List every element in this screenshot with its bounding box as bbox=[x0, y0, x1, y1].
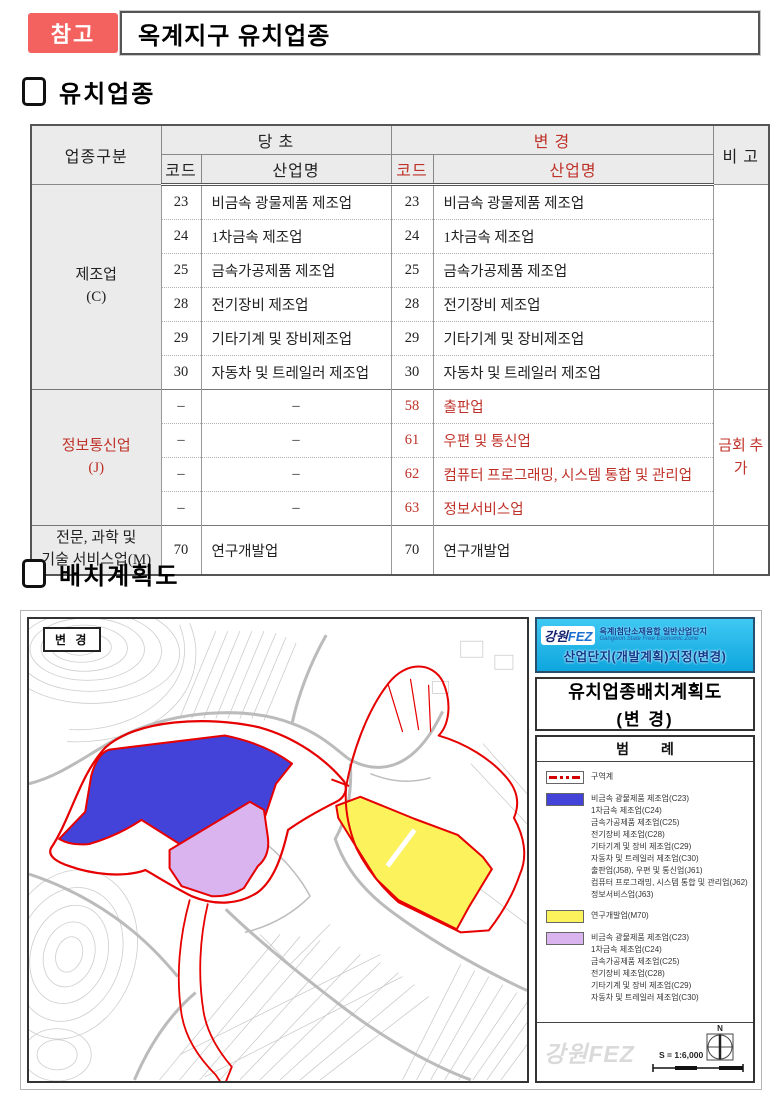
legend-line: 1차금속 제조업(C24) bbox=[591, 805, 748, 817]
logo-fez: FEZ bbox=[568, 629, 593, 644]
legend-line: 컴퓨터 프로그래밍, 시스템 통합 및 관리업(J62) bbox=[591, 877, 748, 889]
legend-line: 자동차 및 트레일러 제조업(C30) bbox=[591, 853, 748, 865]
map-change-label: 변 경 bbox=[43, 627, 101, 652]
panel-footer: 강원FEZ N S = 1:6,000 bbox=[537, 1022, 753, 1081]
map-canvas: 변 경 bbox=[27, 617, 529, 1083]
orig-code: 23 bbox=[161, 185, 201, 220]
legend-item-boundary: 구역계 bbox=[546, 771, 746, 784]
scale-bar-icon bbox=[651, 1064, 747, 1073]
orig-name: 연구개발업 bbox=[201, 526, 391, 576]
checkbox-square-icon bbox=[22, 77, 46, 106]
orig-code: – bbox=[161, 390, 201, 424]
col-header-changed: 변 경 bbox=[391, 125, 713, 155]
orig-name: – bbox=[201, 390, 391, 424]
yellow-zone-swatch-icon bbox=[546, 910, 584, 923]
panel-doc-title-box: 유치업종배치계획도 (변 경) bbox=[535, 677, 755, 731]
orig-name: – bbox=[201, 424, 391, 458]
map-svg bbox=[29, 619, 527, 1081]
orig-code: 25 bbox=[161, 254, 201, 288]
new-name: 정보서비스업 bbox=[433, 492, 713, 526]
new-name: 전기장비 제조업 bbox=[433, 288, 713, 322]
new-code: 28 bbox=[391, 288, 433, 322]
legend-line: 연구개발업(M70) bbox=[591, 910, 649, 922]
remark-cell bbox=[713, 526, 769, 576]
orig-code: 24 bbox=[161, 220, 201, 254]
category-ict: 정보통신업 (J) bbox=[31, 390, 161, 526]
watermark-logo: 강원FEZ bbox=[544, 1035, 635, 1069]
legend-line: 1차금속 제조업(C24) bbox=[591, 944, 699, 956]
new-code: 24 bbox=[391, 220, 433, 254]
legend-line: 출판업(J58), 우편 및 통신업(J61) bbox=[591, 865, 748, 877]
map-side-panel: 강원FEZ 옥계|첨단소재융합 일반산업단지 Gangwon State Fre… bbox=[535, 617, 755, 1083]
new-code: 23 bbox=[391, 185, 433, 220]
section-layout-title: 배치계획도 bbox=[59, 556, 179, 591]
north-label: N bbox=[703, 1025, 737, 1033]
panel-header-subtitle: Gangwon State Free Economic Zone bbox=[599, 636, 707, 642]
col-header-code-orig: 코드 bbox=[161, 155, 201, 185]
new-name: 출판업 bbox=[433, 390, 713, 424]
new-name: 연구개발업 bbox=[433, 526, 713, 576]
doc-title-line2: (변 경) bbox=[616, 705, 673, 730]
orig-code: – bbox=[161, 492, 201, 526]
new-name: 컴퓨터 프로그래밍, 시스템 통합 및 관리업 bbox=[433, 458, 713, 492]
new-code: 62 bbox=[391, 458, 433, 492]
col-header-name-new: 산업명 bbox=[433, 155, 713, 185]
industries-table-wrap: 업종구분 당 초 변 경 비 고 코드 산업명 코드 산업명 제조업 (C) 2… bbox=[30, 124, 770, 576]
legend-line: 기타기계 및 장비 제조업(C29) bbox=[591, 841, 748, 853]
panel-header-title: 옥계|첨단소재융합 일반산업단지 bbox=[599, 628, 707, 636]
boundary-swatch-icon bbox=[546, 771, 584, 784]
col-header-name-orig: 산업명 bbox=[201, 155, 391, 185]
new-name: 금속가공제품 제조업 bbox=[433, 254, 713, 288]
orig-name: 전기장비 제조업 bbox=[201, 288, 391, 322]
new-name: 비금속 광물제품 제조업 bbox=[433, 185, 713, 220]
col-header-category: 업종구분 bbox=[31, 125, 161, 185]
section-layout-heading: 배치계획도 bbox=[22, 556, 179, 591]
new-code: 29 bbox=[391, 322, 433, 356]
category-line1: 제조업 bbox=[33, 265, 160, 287]
purple-zone-swatch-icon bbox=[546, 932, 584, 945]
blue-zone-swatch-icon bbox=[546, 793, 584, 806]
doc-title-line1: 유치업종배치계획도 bbox=[568, 678, 722, 704]
checkbox-square-icon bbox=[22, 559, 46, 588]
remark-added: 금회 추가 bbox=[713, 390, 769, 526]
orig-name: – bbox=[201, 458, 391, 492]
legend-box: 범 례 구역계 비금속 광물제품 제조업(C23) 1차금속 제조업(C24) … bbox=[535, 735, 755, 1083]
section-industries-title: 유치업종 bbox=[59, 74, 155, 109]
legend-item-purple: 비금속 광물제품 제조업(C23) 1차금속 제조업(C24) 금속가공제품 제… bbox=[546, 932, 746, 1004]
new-code: 58 bbox=[391, 390, 433, 424]
legend-line: 전기장비 제조업(C28) bbox=[591, 829, 748, 841]
table-row: 제조업 (C) 23 비금속 광물제품 제조업 23 비금속 광물제품 제조업 bbox=[31, 185, 769, 220]
orig-name: – bbox=[201, 492, 391, 526]
legend-line: 전기장비 제조업(C28) bbox=[591, 968, 699, 980]
legend-line: 비금속 광물제품 제조업(C23) bbox=[591, 793, 748, 805]
orig-name: 기타기계 및 장비제조업 bbox=[201, 322, 391, 356]
panel-header-line2: 산업단지(개발계획)지정(변경) bbox=[541, 646, 749, 665]
category-line2: (C) bbox=[33, 287, 160, 309]
col-header-remarks: 비 고 bbox=[713, 125, 769, 185]
legend-line: 금속가공제품 제조업(C25) bbox=[591, 817, 748, 829]
col-header-original: 당 초 bbox=[161, 125, 391, 155]
category-line1: 정보통신업 bbox=[33, 436, 160, 458]
category-line2: (J) bbox=[33, 458, 160, 480]
orig-code: 29 bbox=[161, 322, 201, 356]
legend-line: 기타기계 및 장비 제조업(C29) bbox=[591, 980, 699, 992]
section-industries-heading: 유치업종 bbox=[22, 74, 155, 109]
industries-table: 업종구분 당 초 변 경 비 고 코드 산업명 코드 산업명 제조업 (C) 2… bbox=[30, 124, 770, 576]
reference-badge: 참고 bbox=[28, 13, 118, 53]
new-code: 30 bbox=[391, 356, 433, 390]
scale-indicator: S = 1:6,000 bbox=[651, 1050, 747, 1078]
legend-line: 비금속 광물제품 제조업(C23) bbox=[591, 932, 699, 944]
new-name: 1차금속 제조업 bbox=[433, 220, 713, 254]
orig-name: 1차금속 제조업 bbox=[201, 220, 391, 254]
new-name: 기타기계 및 장비제조업 bbox=[433, 322, 713, 356]
category-manufacturing: 제조업 (C) bbox=[31, 185, 161, 390]
new-code: 61 bbox=[391, 424, 433, 458]
orig-code: – bbox=[161, 424, 201, 458]
new-name: 자동차 및 트레일러 제조업 bbox=[433, 356, 713, 390]
legend-item-yellow: 연구개발업(M70) bbox=[546, 910, 746, 923]
gangwon-fez-logo: 강원FEZ bbox=[541, 626, 595, 645]
page-title: 옥계지구 유치업종 bbox=[138, 16, 330, 51]
legend-boundary-label: 구역계 bbox=[591, 771, 613, 783]
scale-label: S = 1:6,000 bbox=[659, 1050, 747, 1060]
legend-item-blue: 비금속 광물제품 제조업(C23) 1차금속 제조업(C24) 금속가공제품 제… bbox=[546, 793, 746, 901]
legend-line: 정보서비스업(J63) bbox=[591, 889, 748, 901]
new-code: 63 bbox=[391, 492, 433, 526]
orig-code: 30 bbox=[161, 356, 201, 390]
page-title-box: 옥계지구 유치업종 bbox=[120, 11, 760, 55]
new-code: 70 bbox=[391, 526, 433, 576]
new-name: 우편 및 통신업 bbox=[433, 424, 713, 458]
panel-blue-header: 강원FEZ 옥계|첨단소재융합 일반산업단지 Gangwon State Fre… bbox=[535, 617, 755, 673]
orig-name: 금속가공제품 제조업 bbox=[201, 254, 391, 288]
legend-line: 금속가공제품 제조업(C25) bbox=[591, 956, 699, 968]
logo-gangwon: 강원 bbox=[544, 629, 568, 644]
col-header-code-new: 코드 bbox=[391, 155, 433, 185]
legend-title: 범 례 bbox=[537, 737, 753, 762]
orig-name: 비금속 광물제품 제조업 bbox=[201, 185, 391, 220]
table-row: 정보통신업 (J) – – 58 출판업 금회 추가 bbox=[31, 390, 769, 424]
layout-plan-figure: 변 경 강원FEZ 옥계|첨단소재융합 일반산업단지 Gangwon State… bbox=[20, 610, 762, 1090]
orig-code: – bbox=[161, 458, 201, 492]
orig-name: 자동차 및 트레일러 제조업 bbox=[201, 356, 391, 390]
orig-code: 28 bbox=[161, 288, 201, 322]
remark-cell bbox=[713, 185, 769, 390]
category-line1: 전문, 과학 및 bbox=[33, 528, 160, 550]
legend-line: 자동차 및 트레일러 제조업(C30) bbox=[591, 992, 699, 1004]
new-code: 25 bbox=[391, 254, 433, 288]
